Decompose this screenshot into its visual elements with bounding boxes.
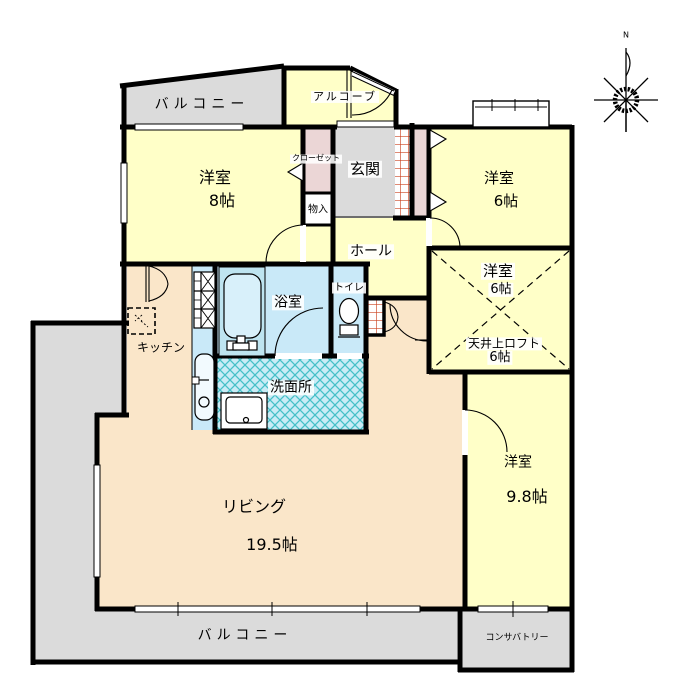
bay-window xyxy=(473,99,549,127)
hall-west-floor xyxy=(303,225,333,263)
floorplan-drawing xyxy=(0,0,675,698)
entrance-opening xyxy=(337,121,394,127)
loft-name-label: 天井上ロフト xyxy=(466,337,542,350)
genkan-label: 玄関 xyxy=(348,161,382,178)
toilet-label: トイレ xyxy=(332,283,366,294)
balcony-top-label: バルコニー xyxy=(155,97,250,112)
room6-top-size-label: 6帖 xyxy=(494,193,519,210)
loft-room-size-label: 6帖 xyxy=(488,283,513,297)
compass-icon xyxy=(594,48,658,132)
kitchen-label: キッチン xyxy=(137,341,185,354)
toilet-icon xyxy=(338,299,360,338)
living-size-label: 19.5帖 xyxy=(246,536,298,554)
alcove-label: アルコーブ xyxy=(311,91,379,103)
closet2-floor xyxy=(414,125,428,218)
washbasin-icon xyxy=(221,393,267,429)
room6-top-floor xyxy=(429,127,572,248)
balcony-bottom-label: バルコニー xyxy=(198,628,293,643)
loft-room-name-label: 洋室 xyxy=(481,263,515,280)
floor-plan: バルコニー アルコーブ 洋室 8帖 クローゼット 物入 玄関 洋室 6帖 ホール… xyxy=(0,0,675,698)
shoe-cabinet xyxy=(395,125,412,218)
closet-label: クローゼット xyxy=(290,155,342,164)
living-name-label: リビング xyxy=(222,498,286,516)
bathroom-label: 浴室 xyxy=(272,295,304,310)
compass-north-label: N xyxy=(623,32,629,41)
loft-size-label: 6帖 xyxy=(487,351,512,365)
hall-label: ホール xyxy=(348,244,394,259)
kitchen-cabinet-icon xyxy=(194,272,215,328)
washroom-label: 洗面所 xyxy=(268,380,314,395)
kitchen-sink-icon xyxy=(192,354,214,420)
room8-name-label: 洋室 xyxy=(199,169,231,187)
room6-top-name-label: 洋室 xyxy=(484,170,514,187)
room98-name-label: 洋室 xyxy=(504,455,532,470)
bathtub-icon xyxy=(219,267,265,356)
storage-mid xyxy=(366,298,384,335)
storage-label: 物入 xyxy=(306,205,330,216)
room98-size-label: 9.8帖 xyxy=(506,488,547,506)
room8-size-label: 8帖 xyxy=(209,192,235,210)
conservatory-label: コンサバトリー xyxy=(486,634,549,644)
